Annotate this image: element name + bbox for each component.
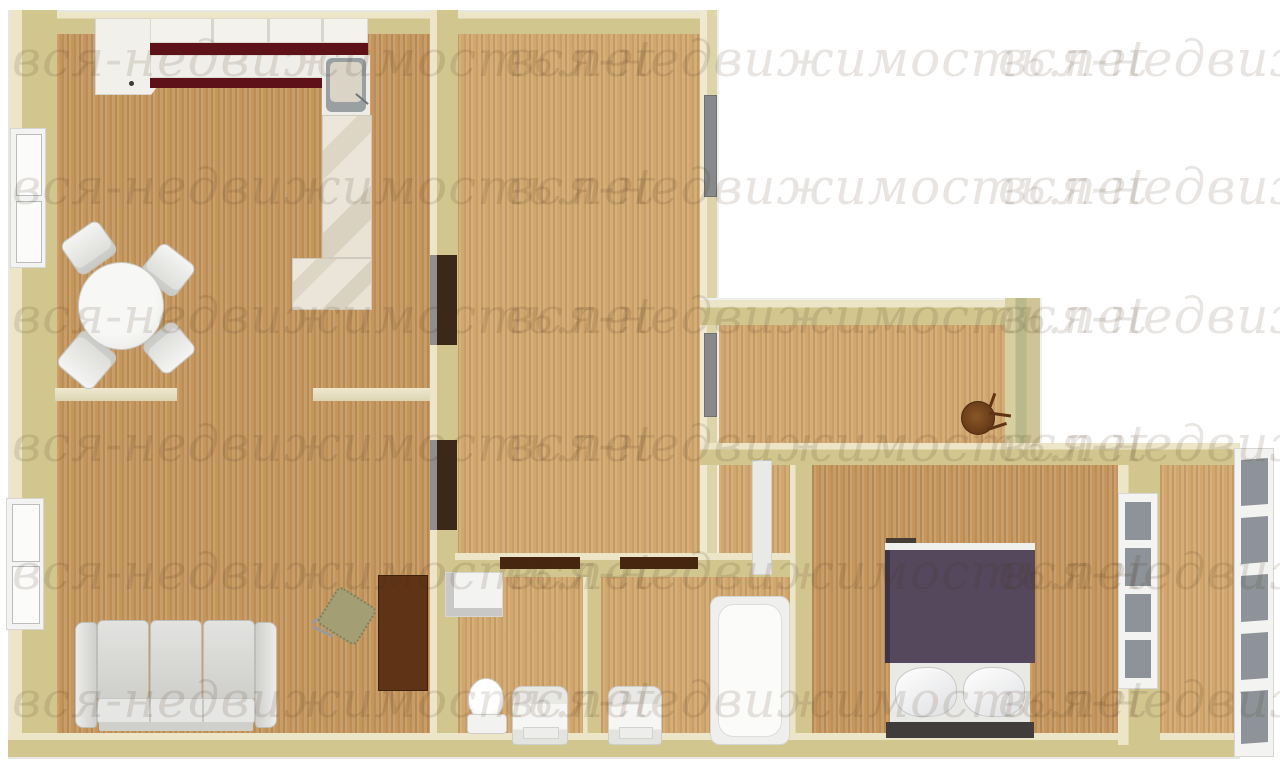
middle-room-doorway-upper [437,255,457,345]
bed-headboard [886,722,1034,738]
window-pane [1125,640,1151,678]
toilet [466,678,508,734]
middle-room-floor [457,32,700,553]
coat-stand [953,393,1009,443]
bed-pillow-left [894,666,958,718]
middle-room-door-leaf-lower [430,440,437,530]
sofa-back-cushion [150,620,202,700]
middle-room-doorway-lower [437,440,457,530]
vanity-front-drawer [523,727,559,739]
kitchen-sink-unit [322,55,370,115]
window-pane [1241,574,1268,622]
bathroom-door-leaf [620,557,698,569]
kitchen-sink [326,58,366,112]
kitchen-counter [150,55,322,78]
bed-duvet [885,550,1035,663]
kitchen-cabinet-front-strip [150,43,368,55]
office-chair-seat [316,585,378,647]
corridor-top-wall [700,298,1020,325]
double-bed [885,543,1035,738]
coat-stand-arm [989,393,997,407]
window-pane [1125,502,1151,540]
middle-room-door-leaf-upper [430,255,437,345]
corridor-right-wall [1005,298,1042,448]
wc-door-leaf [500,557,580,569]
cabinet-handle [129,81,134,86]
window-pane [12,504,40,562]
corridor-door-leaf [704,333,717,417]
sofa-seat [97,698,255,724]
left-outer-wall [8,10,57,757]
washing-machine [445,572,503,617]
sink-vanity-bathroom [608,686,662,745]
watermark-text: вся-недвижимость.net [998,30,1280,88]
entry-door-leaf [704,95,717,197]
balcony-outer-window [1234,448,1274,757]
marble-counter-block [292,258,372,310]
kitchen-counter-front-strip [150,78,322,88]
living-middle-divider-wall [430,10,458,733]
duct-wall [752,460,772,575]
bed-pillow-right [962,666,1026,718]
sofa-back-cushion [203,620,255,700]
sofa-armrest-right [255,622,277,728]
watermark-text: вся-недвижимость.net [998,158,1280,216]
balcony-door-window [1118,493,1158,689]
dining-table [78,262,164,350]
window-pane [16,201,42,263]
window-pane [1241,632,1268,680]
window-pane [1241,516,1268,564]
sofa-armrest-left [75,622,97,728]
sofa-back-cushion [97,620,149,700]
wc-bathroom-divider-wall [583,577,601,733]
sink-vanity-wc [512,686,568,745]
window-pane [1241,690,1268,744]
balcony-floor [1160,465,1236,745]
kitchen-living-divider-strip-right [313,388,430,401]
office-chair [308,588,378,648]
window-pane [1241,458,1268,506]
vanity-front-drawer [619,727,653,739]
bedroom-left-wall [790,465,812,733]
toilet-tank [467,714,507,734]
window-pane [16,134,42,196]
middle-room-right-wall [700,10,719,570]
marble-counter-strip [322,115,372,258]
kitchen-living-divider-strip-left [55,388,177,401]
sofa-base [99,722,253,731]
bedroom-balcony-top-wall [700,443,1240,465]
kitchen-wall-cabinets [150,18,368,43]
sofa [75,620,277,733]
bathtub [710,596,790,745]
window-pane [1125,548,1151,586]
window-pane [12,566,40,624]
floor-plan: вся-недвижимость.netвся-недвижимость.net… [0,0,1280,761]
left-window-upper [10,128,46,268]
left-window-lower [6,498,44,630]
living-room-door-leaf [378,575,428,691]
window-pane [1125,594,1151,632]
bathtub-basin [718,604,782,737]
